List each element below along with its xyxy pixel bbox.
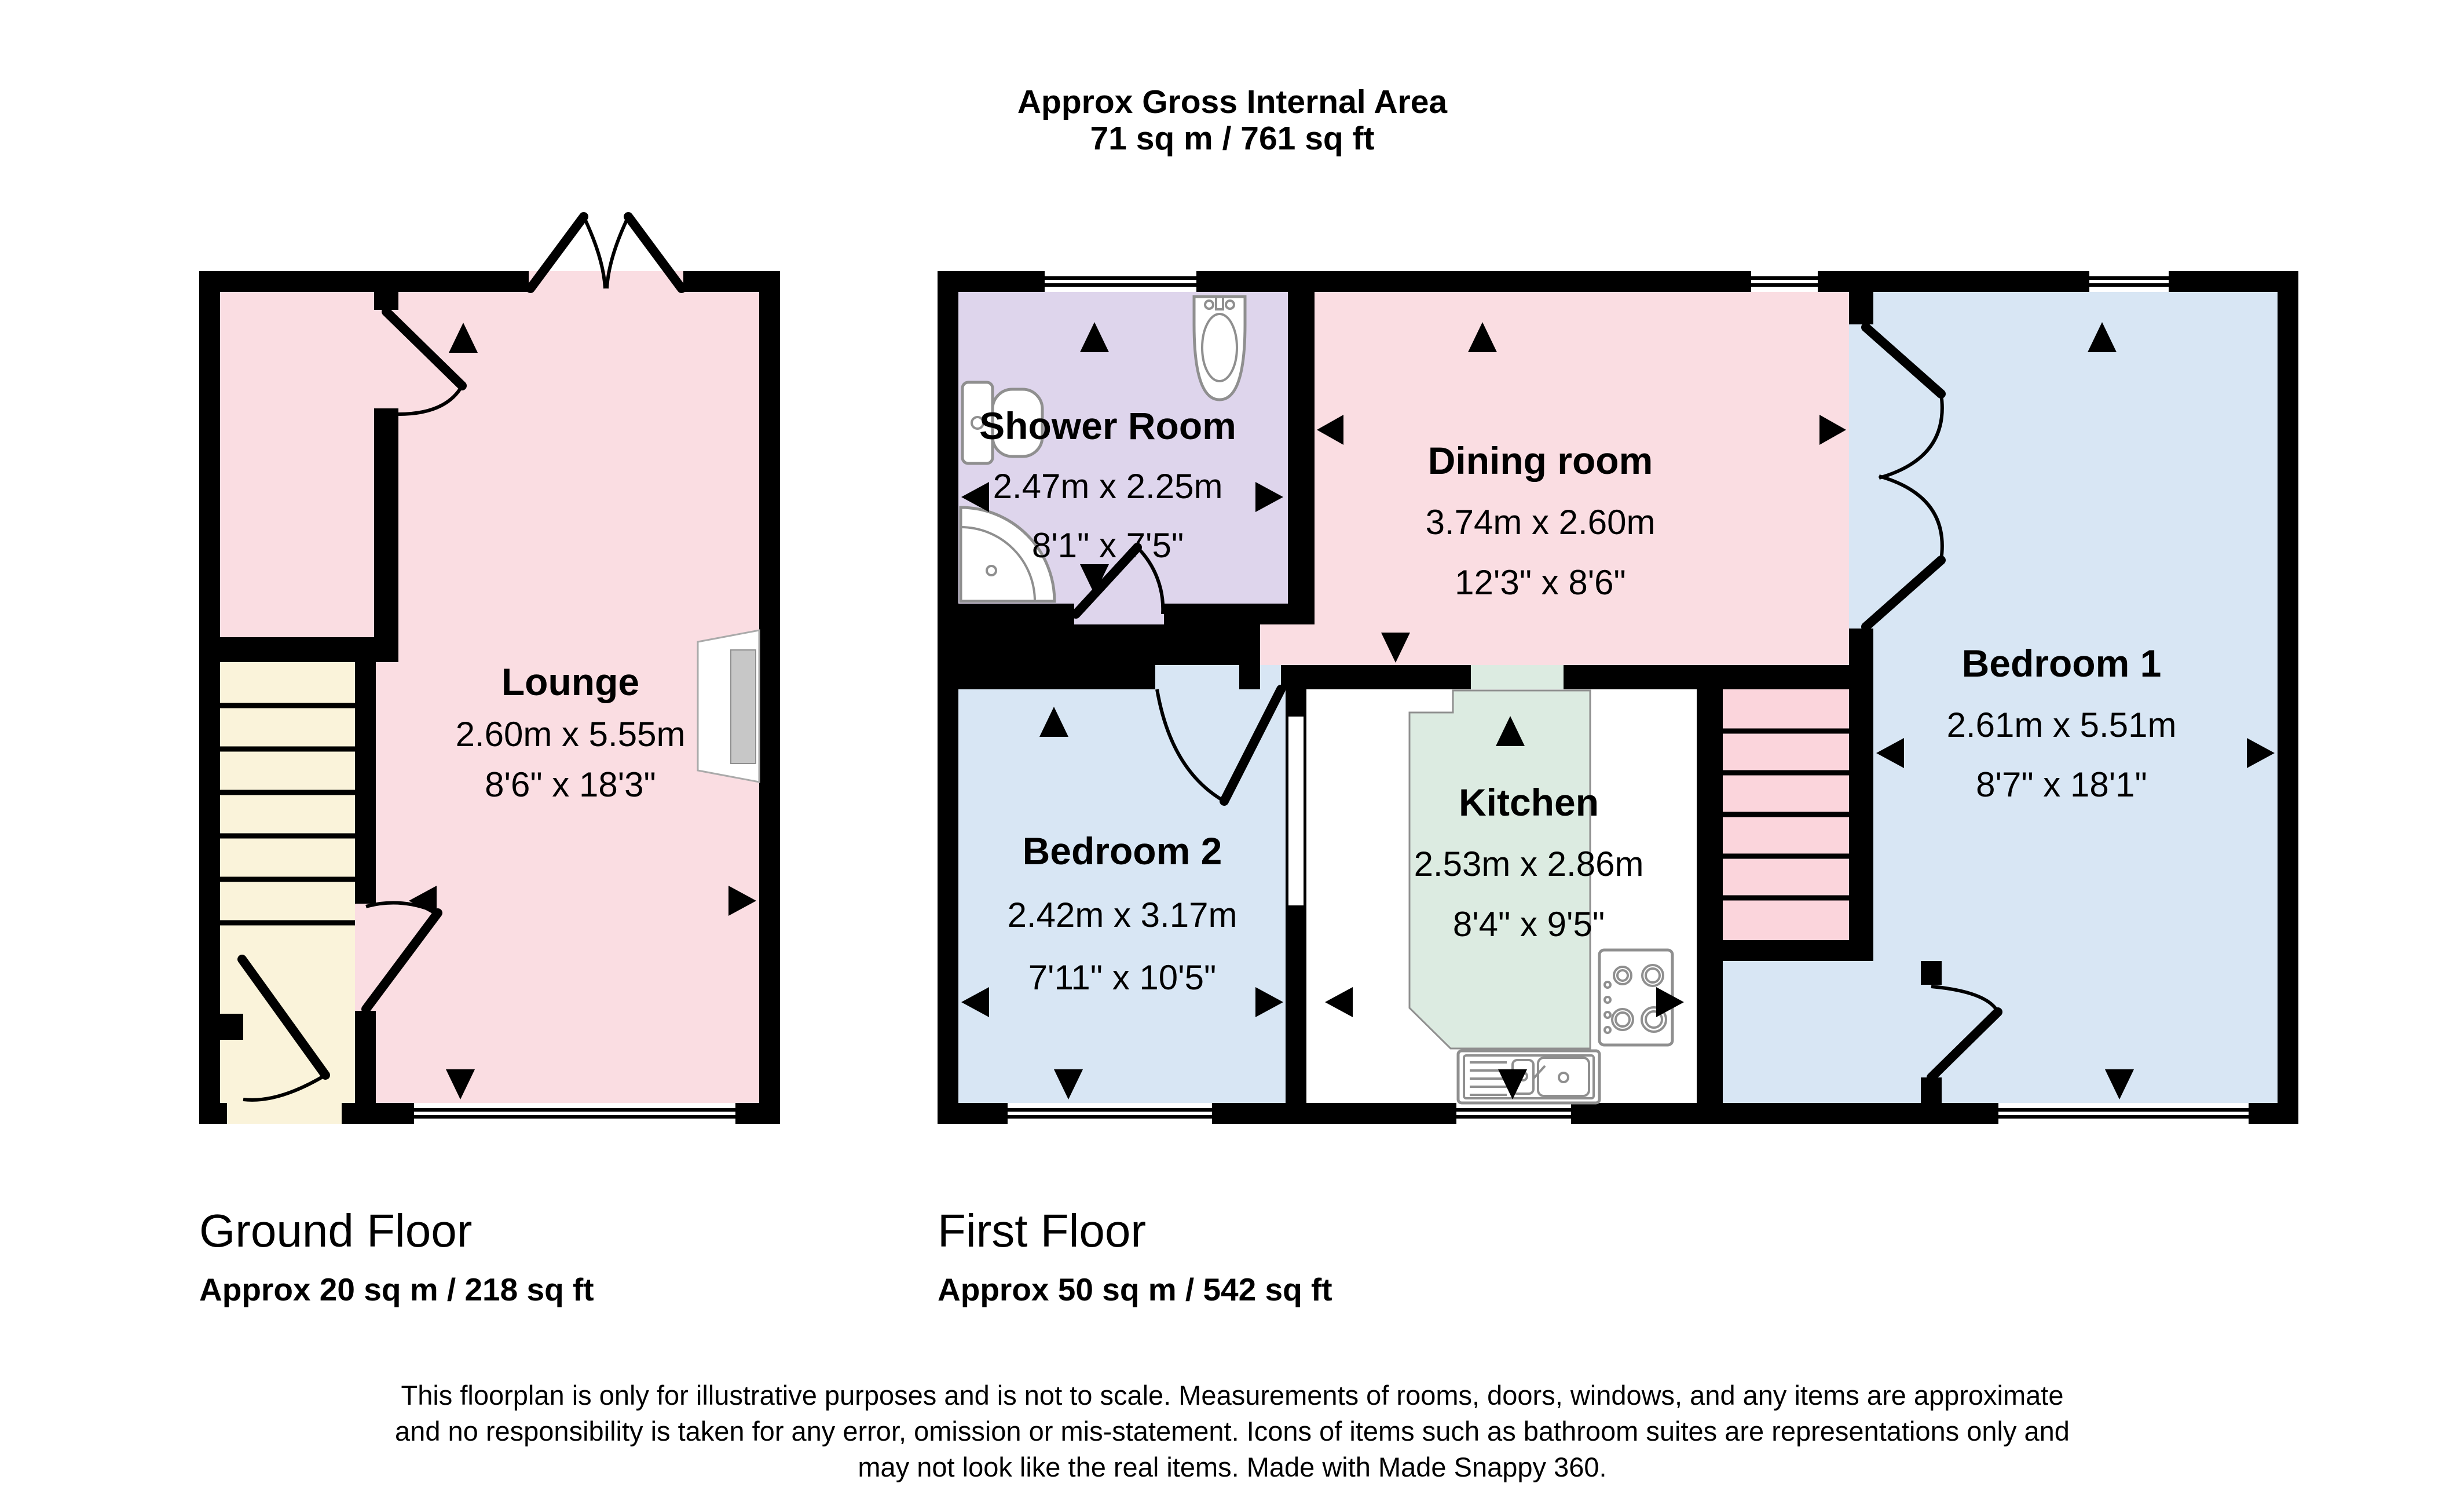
floorplan-page: Approx Gross Internal Area 71 sq m / 761… xyxy=(0,0,2464,1509)
ground-floor-area: Approx 20 sq m / 218 sq ft xyxy=(199,1271,594,1307)
room-dim-metric: 2.42m x 3.17m xyxy=(1008,896,1238,934)
window-symbol xyxy=(1008,1103,1212,1124)
kitchen-opening xyxy=(1471,665,1564,689)
hall-room xyxy=(220,292,374,637)
kitchen-sink-icon xyxy=(1458,1051,1599,1103)
bedroom1-door-opening xyxy=(1921,985,1942,1077)
disclaimer-line-3: may not look like the real items. Made w… xyxy=(858,1452,1606,1482)
disclaimer-line-1: This floorplan is only for illustrative … xyxy=(401,1380,2064,1411)
disclaimer-line-2: and no responsibility is taken for any e… xyxy=(395,1416,2070,1446)
title-line-1: Approx Gross Internal Area xyxy=(1017,83,1448,120)
room-label-bedroom-1: Bedroom 1 xyxy=(1962,642,2162,685)
first-floor-caption: First Floor xyxy=(938,1205,1146,1256)
room-dim-imperial: 12'3" x 8'6" xyxy=(1455,563,1626,602)
room-dim-imperial: 8'6" x 18'3" xyxy=(485,765,656,804)
window-symbol xyxy=(1751,271,1818,292)
room-dim-imperial: 7'11" x 10'5" xyxy=(1028,958,1217,997)
room-label-lounge: Lounge xyxy=(501,660,639,703)
room-dim-imperial: 8'7" x 18'1" xyxy=(1976,765,2147,804)
room-label-dining-room: Dining room xyxy=(1428,439,1653,482)
room-dim-metric: 2.47m x 2.25m xyxy=(993,467,1223,506)
ground-floor-plan: Lounge 2.60m x 5.55m 8'6" x 18'3" xyxy=(199,217,780,1124)
window-symbol xyxy=(1998,1103,2249,1124)
title-line-2: 71 sq m / 761 sq ft xyxy=(1090,120,1374,157)
room-dim-metric: 2.61m x 5.51m xyxy=(1947,706,2177,744)
front-door-opening xyxy=(227,1103,342,1124)
basin-icon xyxy=(1194,297,1245,400)
wall-stub xyxy=(1239,604,1260,689)
room-dim-metric: 2.60m x 5.55m xyxy=(456,715,686,754)
room-dim-imperial: 8'4" x 9'5" xyxy=(1453,905,1605,944)
window-symbol xyxy=(1456,1103,1571,1124)
ground-floor-caption: Ground Floor xyxy=(199,1205,472,1256)
first-floor-area: Approx 50 sq m / 542 sq ft xyxy=(938,1271,1332,1307)
room-dim-metric: 2.53m x 2.86m xyxy=(1414,845,1644,883)
bedroom2-door-opening xyxy=(1155,665,1281,689)
wall-recess xyxy=(698,630,759,782)
pocket-door xyxy=(1287,715,1305,907)
room-label-bedroom-2: Bedroom 2 xyxy=(1023,830,1222,872)
window-symbol xyxy=(414,1103,735,1124)
first-floor-plan: Shower Room 2.47m x 2.25m 8'1" x 7'5" Di… xyxy=(938,271,2298,1124)
vestibule xyxy=(1260,624,1315,665)
window-symbol xyxy=(2089,271,2169,292)
wall-nub xyxy=(220,1014,243,1040)
room-label-kitchen: Kitchen xyxy=(1459,781,1599,824)
room-label-shower-room: Shower Room xyxy=(979,404,1236,447)
window-symbol xyxy=(1045,271,1196,292)
floorplan-drawing: Approx Gross Internal Area 71 sq m / 761… xyxy=(0,0,2464,1509)
landing xyxy=(1723,961,1921,1103)
bedroom1-double-door-opening xyxy=(1849,324,1873,629)
room-dim-imperial: 8'1" x 7'5" xyxy=(1032,526,1184,565)
room-dim-metric: 3.74m x 2.60m xyxy=(1426,503,1656,542)
